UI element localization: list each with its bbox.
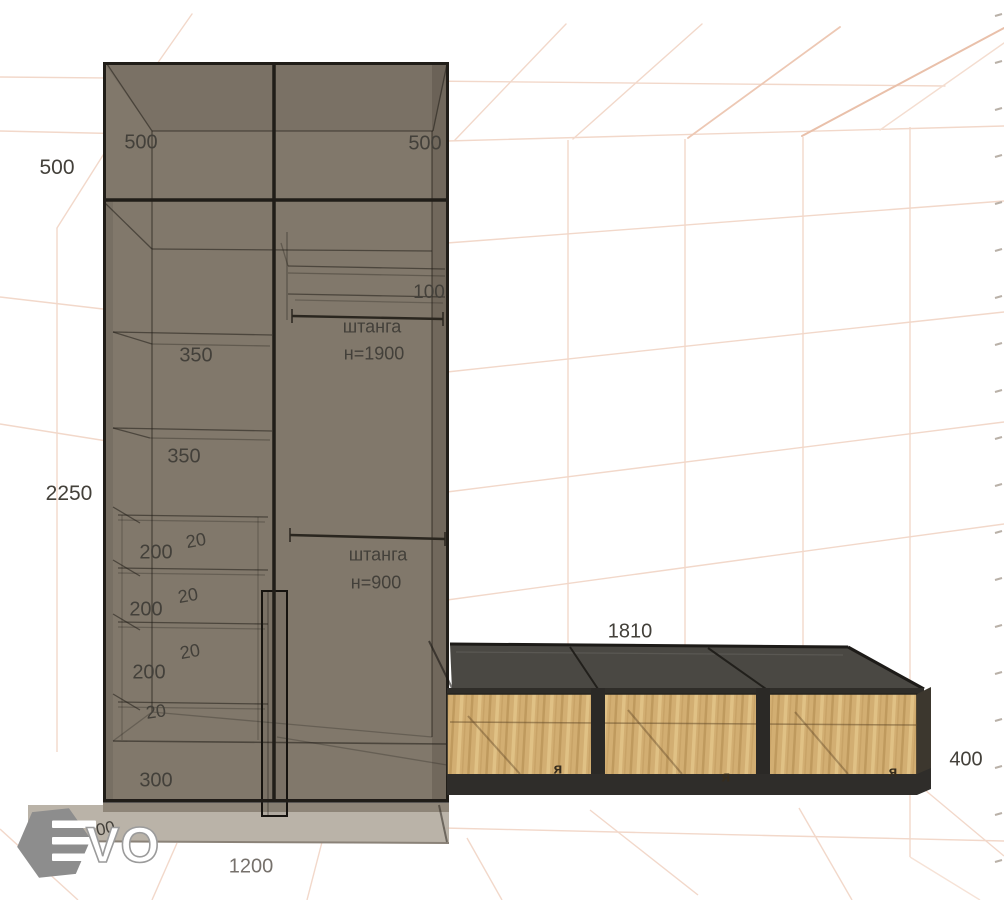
bottom-gap-label: 300 — [139, 770, 172, 793]
rod-upper-height-label: н=1900 — [344, 344, 405, 365]
wardrobe-body — [103, 62, 449, 802]
cabinet-width-label: 1200 — [229, 856, 274, 879]
drawer-gap-2-label: 20 — [176, 584, 199, 608]
shelf-gap-1-label: 350 — [179, 345, 212, 368]
shelf-gap-2-label: 350 — [167, 446, 200, 469]
bench-drawer-mark-1: я — [554, 761, 563, 778]
bench-top — [450, 644, 924, 690]
bench-front — [447, 687, 931, 795]
cad-viewport: 500 2250 500 500 100 штанга н=1900 350 3… — [0, 0, 1004, 900]
wardrobe-door-panel — [262, 591, 287, 816]
drawer-gap-4-label: 20 — [145, 700, 168, 724]
rod-upper-name-label: штанга — [343, 317, 402, 338]
bench-height-label: 400 — [949, 749, 982, 772]
rod-lower-height-label: н=900 — [351, 573, 401, 594]
bench-drawer-mark-3: я — [889, 764, 898, 781]
bench-width-label: 1810 — [608, 621, 653, 644]
ruler-ticks — [995, 14, 1002, 862]
bench-drawer-mark-2: я — [722, 769, 731, 786]
dim-mezzanine-left-label: 500 — [124, 132, 157, 155]
drawer-3-label: 200 — [132, 662, 165, 685]
drawer-gap-3-label: 20 — [178, 640, 201, 664]
drawer-gap-1-label: 20 — [184, 529, 207, 553]
dim-top-shelf-gap-label: 100 — [413, 282, 445, 304]
wall-grid-right — [447, 127, 1004, 857]
ceiling-grid — [0, 14, 1004, 228]
dim-mezzanine-height-label: 500 — [39, 156, 74, 180]
dim-mezzanine-right-label: 500 — [408, 133, 441, 156]
drawer-1-label: 200 — [139, 542, 172, 565]
wardrobe-inner-lines — [105, 64, 447, 765]
dim-total-height-label: 2250 — [46, 482, 93, 506]
evo-logo: VO — [6, 796, 176, 896]
drawer-2-label: 200 — [129, 599, 162, 622]
rod-lower-name-label: штанга — [349, 545, 408, 566]
wardrobe-frame — [103, 62, 449, 802]
logo-letters: VO — [86, 817, 160, 873]
bench-left-edge — [429, 641, 453, 690]
